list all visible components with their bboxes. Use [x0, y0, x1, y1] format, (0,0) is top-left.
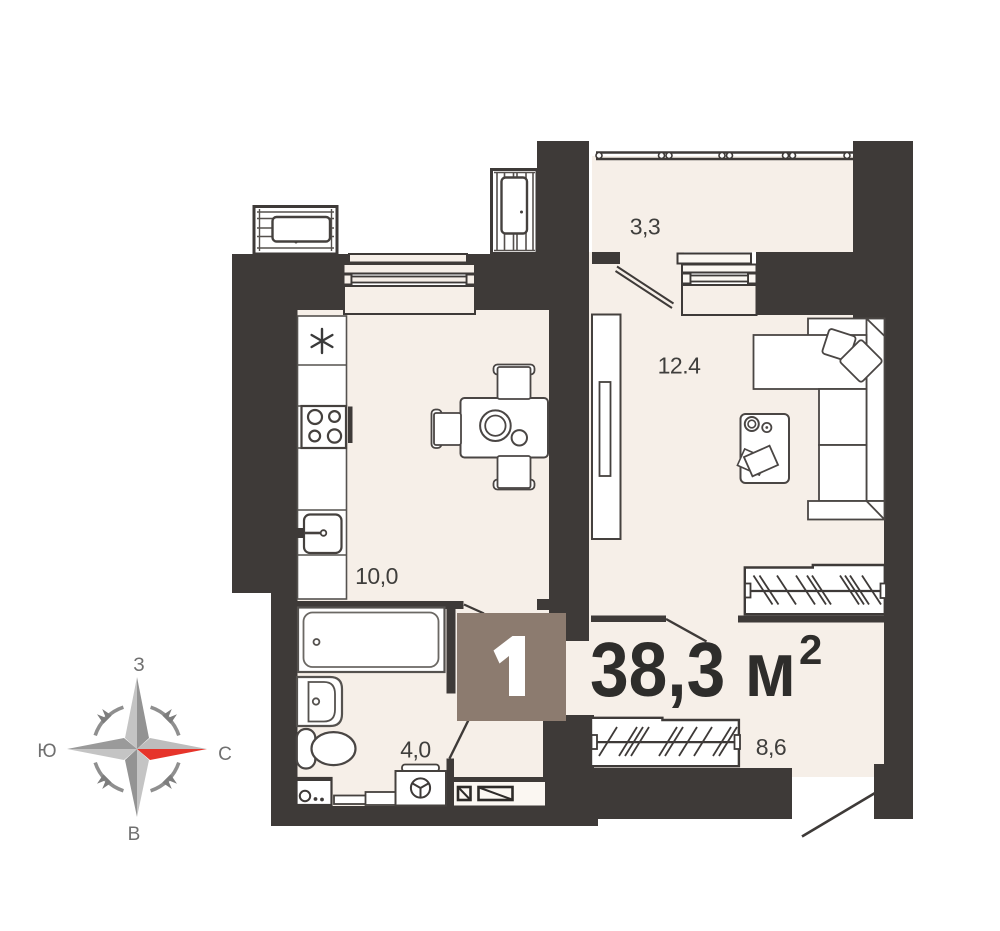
- svg-text:12.4: 12.4: [658, 353, 701, 379]
- svg-text:8,6: 8,6: [756, 734, 786, 760]
- svg-text:3,3: 3,3: [630, 214, 660, 240]
- svg-text:В: В: [128, 824, 141, 845]
- svg-text:4,0: 4,0: [400, 737, 430, 763]
- svg-text:З: З: [133, 655, 144, 676]
- svg-text:38,3 м: 38,3 м: [590, 627, 796, 713]
- svg-text:10,0: 10,0: [355, 563, 398, 589]
- svg-text:С: С: [218, 744, 232, 765]
- svg-text:2: 2: [799, 626, 822, 673]
- svg-text:Ю: Ю: [37, 741, 56, 762]
